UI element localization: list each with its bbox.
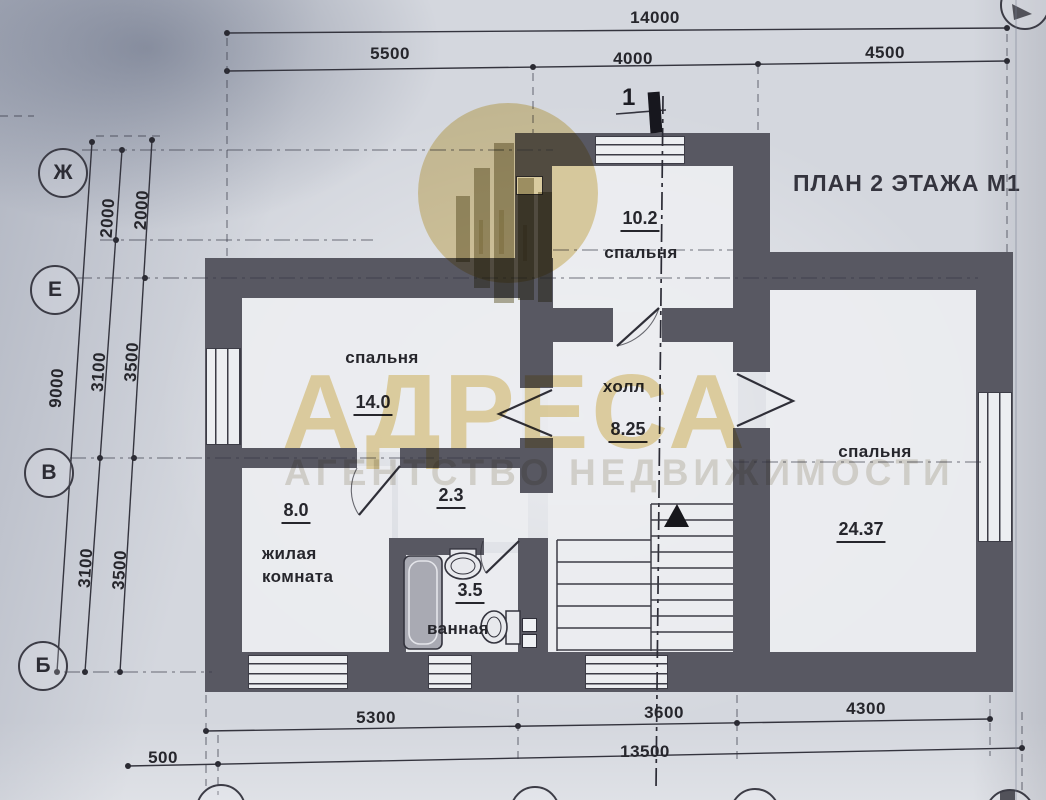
dim-left-mid-2: 3100 bbox=[88, 351, 111, 392]
room-interior-bedroom-top bbox=[548, 160, 738, 312]
floor-plan-photo: Ж Е В Б ПЛАН 2 ЭТАЖА М1 1 14000 5500 400… bbox=[0, 0, 1046, 800]
room-interior-bathroom bbox=[400, 553, 522, 655]
grid-axis-zh: Ж bbox=[38, 148, 88, 198]
window-bottom-bathroom bbox=[428, 655, 472, 689]
grid-axis-bottom-4 bbox=[985, 789, 1035, 800]
grid-axis-bottom-3 bbox=[730, 788, 780, 800]
grid-axis-bottom-1 bbox=[196, 784, 246, 800]
dim-bottom-offset: 500 bbox=[148, 748, 178, 768]
dim-top-seg1: 5500 bbox=[370, 44, 410, 64]
dim-left-inner-3: 3500 bbox=[109, 549, 132, 590]
room-name-bathroom: ванная bbox=[427, 619, 489, 639]
wall-top-left bbox=[205, 258, 553, 298]
wall-hall-right-lower bbox=[733, 428, 770, 652]
room-name-bedroom-right: спальня bbox=[838, 442, 911, 462]
dim-left-total: 9000 bbox=[46, 367, 69, 408]
grid-axis-top-right bbox=[1000, 0, 1046, 30]
dim-top-seg3: 4500 bbox=[865, 43, 905, 63]
wall-hall-left-upper bbox=[520, 298, 553, 388]
room-area-bedroom-top: 10.2 bbox=[620, 208, 659, 232]
room-area-bathroom: 3.5 bbox=[455, 580, 484, 604]
vent-shaft-icon bbox=[522, 618, 537, 632]
room-area-bedroom-right: 24.37 bbox=[836, 519, 885, 543]
grid-axis-v: В bbox=[24, 448, 74, 498]
grid-axis-label: Е bbox=[48, 278, 62, 302]
wall-top-right bbox=[770, 252, 1013, 290]
grid-axis-b: Б bbox=[18, 641, 68, 691]
wall-bedroom-top-bottom-b bbox=[662, 308, 733, 342]
dim-bottom-seg2: 3600 bbox=[644, 703, 684, 723]
wall-niche bbox=[516, 176, 543, 195]
wall-bathroom-left bbox=[389, 538, 406, 657]
wall-bedroom-top-right bbox=[733, 133, 770, 372]
vent-shaft-icon bbox=[522, 634, 537, 648]
grid-axis-label: Ж bbox=[54, 161, 73, 185]
wall-living-partition-a bbox=[205, 448, 357, 468]
wall-living-partition-b bbox=[400, 448, 553, 468]
watermark-building-icon bbox=[456, 196, 470, 262]
room-name-hall: холл bbox=[603, 377, 645, 397]
room-area-corridor: 2.3 bbox=[436, 485, 465, 509]
room-interior-stairs bbox=[548, 500, 738, 655]
dim-top-seg2: 4000 bbox=[613, 49, 653, 69]
dim-bottom-seg1: 5300 bbox=[356, 708, 396, 728]
wall-bathroom-top bbox=[389, 538, 484, 555]
window-left-wall bbox=[206, 348, 241, 445]
grid-axis-e: Е bbox=[30, 265, 80, 315]
room-interior-bedroom-right bbox=[766, 288, 980, 656]
section-mark-label: 1 bbox=[622, 84, 635, 112]
room-name-bedroom-top: спальня bbox=[604, 243, 677, 263]
grid-axis-bottom-2 bbox=[510, 786, 560, 800]
dim-left-inner-2: 3500 bbox=[121, 341, 144, 382]
dim-left-inner-1: 2000 bbox=[131, 189, 154, 230]
grid-axis-label: Б bbox=[35, 654, 50, 678]
room-name-bedroom-left: спальня bbox=[345, 348, 418, 368]
page-title: ПЛАН 2 ЭТАЖА М1 bbox=[793, 170, 1021, 197]
window-right-wall bbox=[978, 392, 1012, 542]
watermark-building-window bbox=[479, 220, 483, 254]
room-area-bedroom-left: 14.0 bbox=[353, 392, 392, 416]
room-area-living: 8.0 bbox=[281, 500, 310, 524]
wall-left bbox=[205, 258, 242, 692]
dim-left-mid-1: 2000 bbox=[97, 197, 120, 238]
dim-bottom-seg3: 4300 bbox=[846, 699, 886, 719]
wall-bedroom-top-bottom-a bbox=[552, 308, 613, 342]
room-interior-bedroom-left bbox=[242, 295, 522, 452]
window-bedroom-top bbox=[595, 136, 685, 164]
watermark-building-window bbox=[499, 210, 504, 254]
dim-total-top: 14000 bbox=[630, 8, 680, 28]
grid-axis-label: В bbox=[41, 461, 56, 485]
window-bottom-living bbox=[248, 655, 348, 689]
room-name-living: жилая комната bbox=[262, 543, 374, 589]
dim-bottom-total: 13500 bbox=[620, 742, 670, 762]
dim-left-mid-3: 3100 bbox=[75, 547, 98, 588]
window-bottom-stairs bbox=[585, 655, 668, 689]
room-area-hall: 8.25 bbox=[608, 419, 647, 443]
